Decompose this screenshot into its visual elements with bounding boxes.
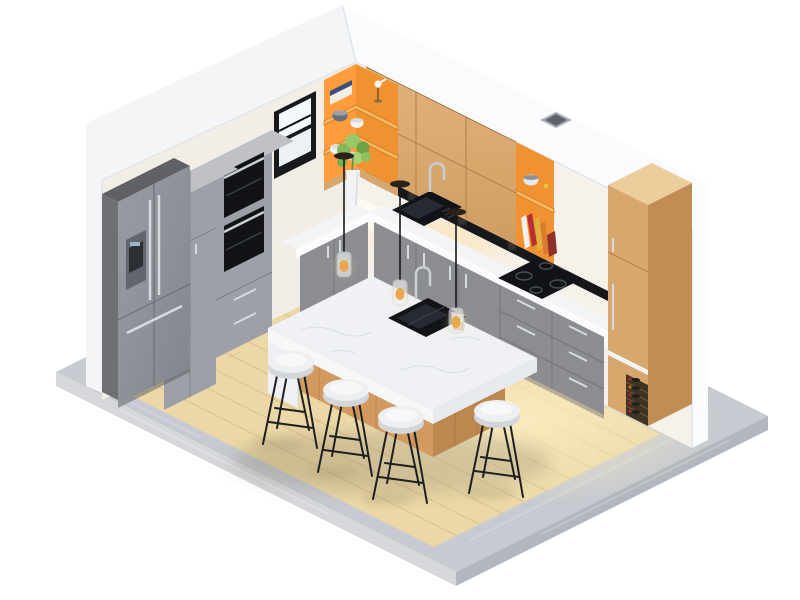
- pendant-canopy: [446, 208, 466, 215]
- pendant-bulb: [340, 260, 349, 272]
- kitchen-render: [0, 0, 800, 600]
- stool-seat-scoop: [330, 382, 362, 395]
- stool-seat-scoop: [275, 354, 307, 367]
- pendant-bulb: [396, 288, 405, 300]
- stool-seat-scoop: [385, 409, 417, 422]
- refrigerator: [102, 158, 190, 408]
- pendant-canopy: [390, 180, 410, 187]
- pantry-side: [648, 183, 692, 426]
- pendant-bulb: [452, 316, 461, 328]
- stool-seat-scoop: [481, 403, 513, 416]
- pendant-canopy: [334, 152, 354, 159]
- corner-open-shelf: [324, 64, 398, 196]
- yellow-ornament: [543, 183, 548, 188]
- pantry-cabinet: [608, 163, 692, 426]
- right-open-shelf: [516, 142, 557, 264]
- fridge-side: [102, 194, 118, 400]
- fridge-display: [130, 242, 140, 246]
- plant-stem: [352, 158, 353, 172]
- isometric-kitchen-scene: [0, 0, 800, 600]
